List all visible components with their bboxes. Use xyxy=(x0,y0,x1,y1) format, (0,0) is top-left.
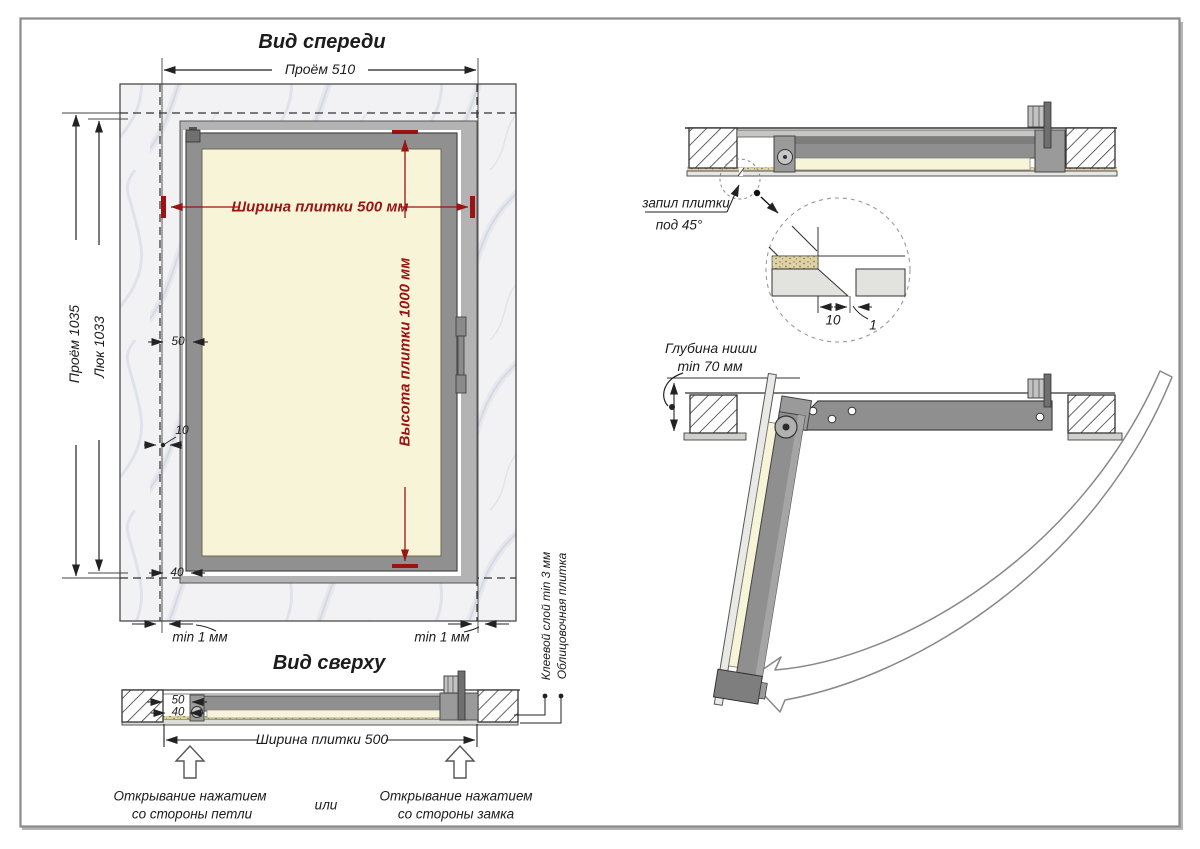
open-lock-label-2: со стороны замка xyxy=(398,807,514,821)
top-view-title: Вид сверху xyxy=(273,653,385,673)
depth-label-2: min 70 мм xyxy=(677,359,742,373)
open-tile-left xyxy=(684,433,746,440)
wall-section-left xyxy=(122,690,163,722)
dim-tile-width: Ширина плитки 500 мм xyxy=(231,200,408,215)
front-view-title: Вид спереди xyxy=(258,32,385,52)
top-door-tile xyxy=(207,710,440,718)
cut-label-2: под 45° xyxy=(656,218,703,232)
open-hinge-label-2: со стороны петли xyxy=(132,807,252,821)
detail-ref-dot xyxy=(754,190,760,196)
open-frame-bar xyxy=(789,401,1052,430)
dim-hatch-height: Люк 1033 xyxy=(92,316,106,378)
cut-label-1: запил плитки xyxy=(642,196,729,210)
dim-opening-width: Проём 510 xyxy=(285,62,355,76)
open-wall-right xyxy=(1068,395,1115,433)
glue-layer-label: Клеевой слой min 3 мм xyxy=(540,552,552,680)
dim-50-front: 50 xyxy=(171,335,184,347)
dim-tile-width-top: Ширина плитки 500 xyxy=(256,732,388,746)
dim-10-front: 10 xyxy=(175,424,188,436)
section-door-tilebed xyxy=(795,158,1030,170)
top-door-profile xyxy=(204,696,440,711)
detail-dim-1: 1 xyxy=(869,318,877,332)
drawing-page: Вид спереди Проём 510 Ширина плитки 500 … xyxy=(0,0,1200,849)
dim-opening-height: Проём 1035 xyxy=(67,305,81,383)
section-wall-right xyxy=(1066,128,1115,168)
wall-section-right xyxy=(478,690,518,722)
open-tile-right xyxy=(1068,433,1122,440)
dim-50-top: 50 xyxy=(172,695,185,707)
or-label: или xyxy=(315,798,338,812)
depth-label-1: Глубина ниши xyxy=(665,341,757,355)
gap-min-right: min 1 мм xyxy=(414,630,469,644)
gap-min-left: min 1 мм xyxy=(172,630,227,644)
dim-40-front: 40 xyxy=(170,566,183,578)
section-wall-left xyxy=(689,128,737,168)
open-lock-label-1: Открывание нажатием xyxy=(379,789,532,803)
section-door-edge xyxy=(795,137,1035,144)
front-view xyxy=(62,58,516,633)
dim-tile-height: Высота плитки 1000 мм xyxy=(398,258,413,447)
open-wall-left xyxy=(690,395,737,433)
tile-layer-label: Облицовочная плитка xyxy=(556,553,568,680)
open-hinge-label-1: Открывание нажатием xyxy=(113,789,266,803)
detail-dim-10: 10 xyxy=(825,313,840,327)
dim-40-top: 40 xyxy=(172,707,185,719)
